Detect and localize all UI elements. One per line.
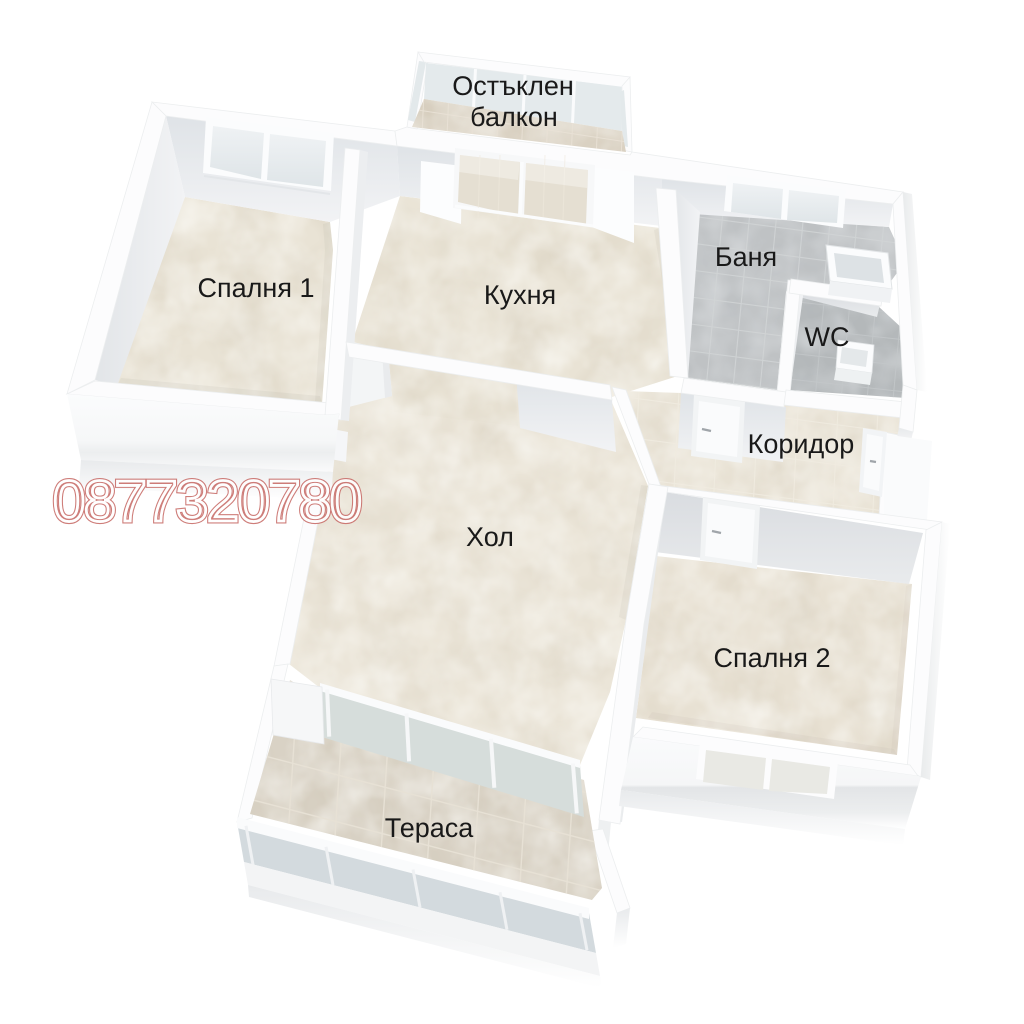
svg-text:Спалня 2: Спалня 2 (714, 643, 831, 673)
svg-text:Хол: Хол (466, 522, 514, 552)
svg-text:Коридор: Коридор (748, 429, 855, 459)
svg-text:Кухня: Кухня (484, 280, 556, 310)
svg-text:Тераса: Тераса (385, 813, 475, 843)
svg-text:WC: WC (805, 322, 850, 352)
svg-text:Баня: Баня (715, 242, 777, 272)
svg-text:Остъклен: Остъклен (452, 71, 574, 101)
svg-text:Спалня 1: Спалня 1 (198, 273, 315, 303)
svg-text:0877320780: 0877320780 (53, 469, 361, 534)
svg-text:балкон: балкон (470, 102, 558, 132)
